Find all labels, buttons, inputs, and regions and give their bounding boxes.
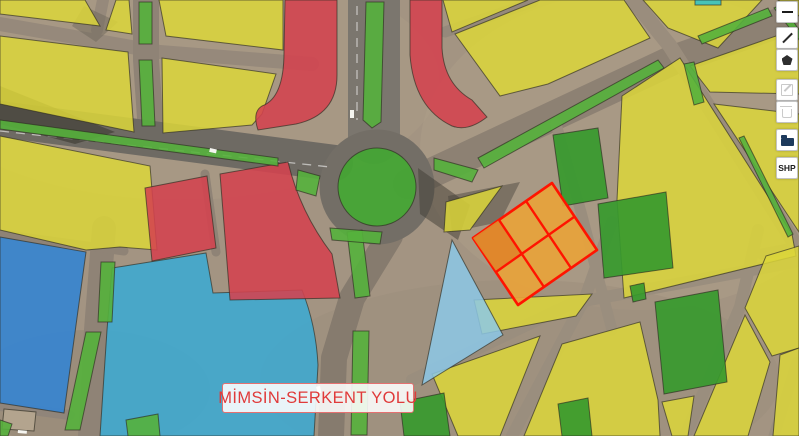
draw-polygon-tool-button[interactable] <box>776 49 798 71</box>
export-shp-button[interactable]: SHP <box>776 157 798 179</box>
vehicle <box>350 110 354 118</box>
zone-park-a[interactable] <box>553 128 608 206</box>
zone-park-d[interactable] <box>630 283 646 302</box>
open-file-button[interactable] <box>776 129 798 151</box>
zone-park-b[interactable] <box>598 192 673 278</box>
road-label: MİMSİN-SERKENT YOLU <box>222 383 414 413</box>
zone-teal-strip[interactable] <box>695 0 721 5</box>
shp-label: SHP <box>778 163 795 173</box>
map-canvas[interactable] <box>0 0 799 436</box>
edit-feature-button <box>776 79 798 101</box>
line-tool-button[interactable] <box>776 1 798 23</box>
zone-median-nw-a[interactable] <box>139 2 152 44</box>
diagonal-line-icon <box>782 33 792 43</box>
zone-commercial-w-a[interactable] <box>145 176 216 261</box>
folder-icon <box>781 138 794 146</box>
horizontal-line-icon <box>782 11 793 13</box>
draw-line-tool-button[interactable] <box>776 27 798 49</box>
map-app-window: MİMSİN-SERKENT YOLU SHP <box>0 0 799 436</box>
zone-median-n[interactable] <box>363 2 384 128</box>
zone-park-c[interactable] <box>655 290 727 394</box>
edit-icon <box>781 84 793 96</box>
zone-median-sw-a[interactable] <box>98 262 115 322</box>
trash-icon <box>782 109 792 118</box>
zone-park-f[interactable] <box>558 398 592 436</box>
zone-median-nw-b[interactable] <box>139 60 155 126</box>
pentagon-icon <box>782 55 793 65</box>
delete-feature-button <box>776 101 798 123</box>
zone-roundabout-park[interactable] <box>338 148 416 226</box>
